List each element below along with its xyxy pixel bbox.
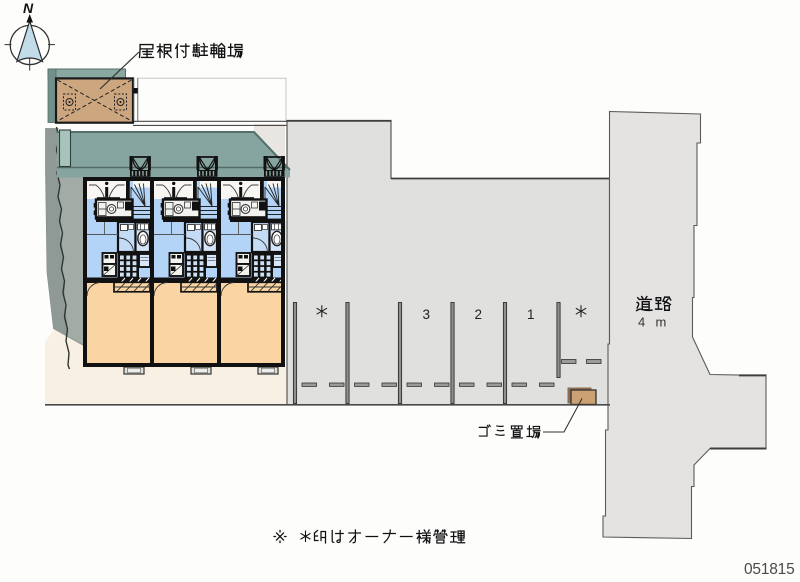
svg-text:2: 2 [475,307,483,322]
svg-text:3: 3 [423,307,431,322]
svg-text:4: 4 [638,315,645,330]
svg-text:051815: 051815 [744,561,795,578]
svg-text:m: m [656,315,667,330]
svg-text:1: 1 [527,307,535,322]
svg-text:N: N [23,0,34,16]
